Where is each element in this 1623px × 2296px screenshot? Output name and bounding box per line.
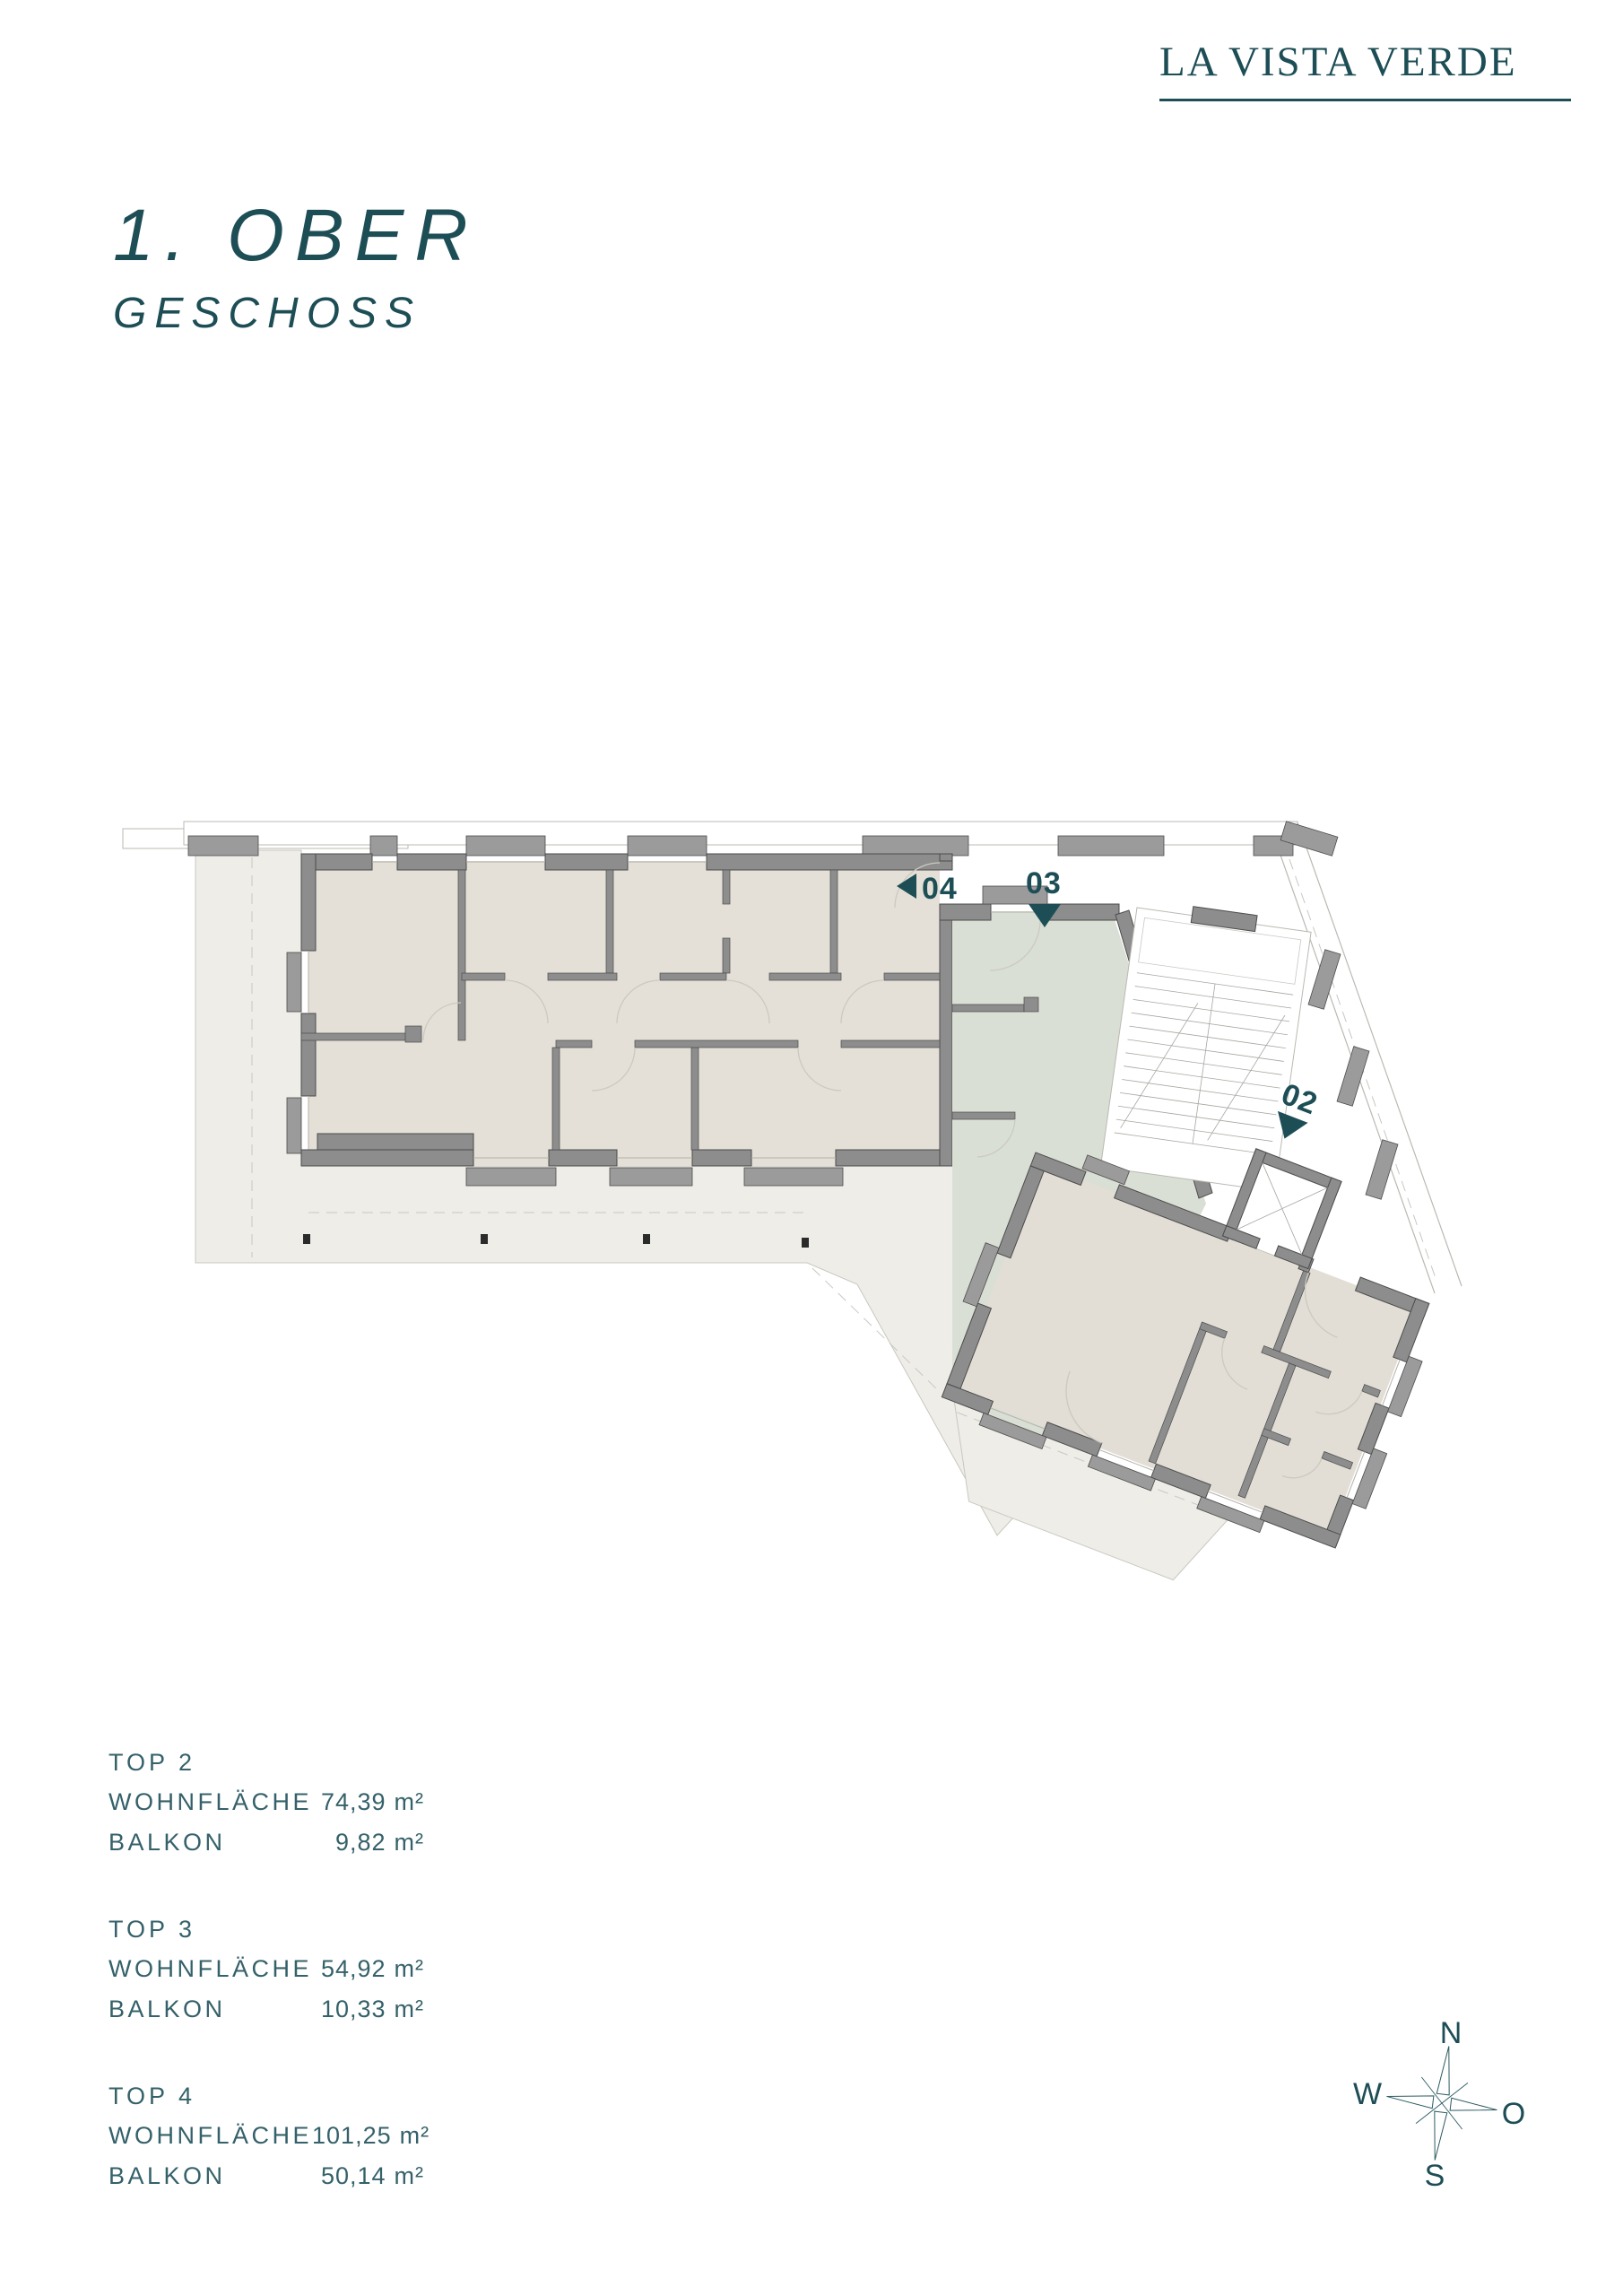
- compass-star-icon: [1380, 2039, 1505, 2167]
- area-unit: m²: [395, 1788, 424, 1815]
- area-row: WOHNFLÄCHE 101,25m²: [108, 2124, 424, 2148]
- area-label: WOHNFLÄCHE: [108, 1790, 312, 1814]
- area-unit: m²: [395, 1955, 424, 1982]
- area-label: WOHNFLÄCHE: [108, 1957, 312, 1981]
- column-dot: [802, 1238, 809, 1248]
- compass-rose: N O S W: [1353, 2016, 1525, 2193]
- area-label: BALKON: [108, 1997, 226, 2022]
- compass-south-label: S: [1425, 2159, 1445, 2193]
- unit-name: TOP 2: [108, 1751, 424, 1775]
- column-dot: [303, 1234, 310, 1244]
- area-row: BALKON 10,33m²: [108, 1997, 424, 2022]
- area-value: 9,82: [335, 1829, 386, 1856]
- legend-block-top2: TOP 2 WOHNFLÄCHE 74,39m² BALKON 9,82m²: [108, 1751, 424, 1855]
- unit-top4-wing: [287, 854, 952, 1186]
- stairwell: [1100, 899, 1312, 1191]
- column-dot: [481, 1234, 488, 1244]
- unit-03-label: 03: [1026, 866, 1062, 900]
- unit-area-legend: TOP 2 WOHNFLÄCHE 74,39m² BALKON 9,82m² T…: [108, 1751, 424, 2251]
- top4-rooms: [308, 861, 940, 1166]
- area-row: WOHNFLÄCHE 74,39m²: [108, 1790, 424, 1814]
- compass-west-label: W: [1353, 2077, 1382, 2111]
- legend-block-top4: TOP 4 WOHNFLÄCHE 101,25m² BALKON 50,14m²: [108, 2084, 424, 2188]
- area-unit: m²: [395, 1829, 424, 1856]
- column-dot: [643, 1234, 650, 1244]
- area-value: 10,33: [321, 1996, 386, 2022]
- area-row: WOHNFLÄCHE 54,92m²: [108, 1957, 424, 1981]
- unit-04-label: 04: [922, 872, 958, 906]
- legend-block-top3: TOP 3 WOHNFLÄCHE 54,92m² BALKON 10,33m²: [108, 1918, 424, 2022]
- area-label: BALKON: [108, 1831, 226, 1855]
- compass-east-label: O: [1502, 2097, 1525, 2131]
- area-value: 74,39: [321, 1788, 386, 1815]
- area-unit: m²: [400, 2122, 430, 2149]
- area-row: BALKON 50,14m²: [108, 2164, 424, 2188]
- area-unit: m²: [395, 1996, 424, 2022]
- area-label: WOHNFLÄCHE: [108, 2124, 312, 2148]
- unit-name: TOP 4: [108, 2084, 424, 2109]
- unit-name: TOP 3: [108, 1918, 424, 1942]
- compass-north-label: N: [1440, 2016, 1462, 2050]
- area-unit: m²: [395, 2162, 424, 2189]
- area-value: 50,14: [321, 2162, 386, 2189]
- area-row: BALKON 9,82m²: [108, 1831, 424, 1855]
- area-label: BALKON: [108, 2164, 226, 2188]
- area-value: 54,92: [321, 1955, 386, 1982]
- area-value: 101,25: [312, 2122, 392, 2149]
